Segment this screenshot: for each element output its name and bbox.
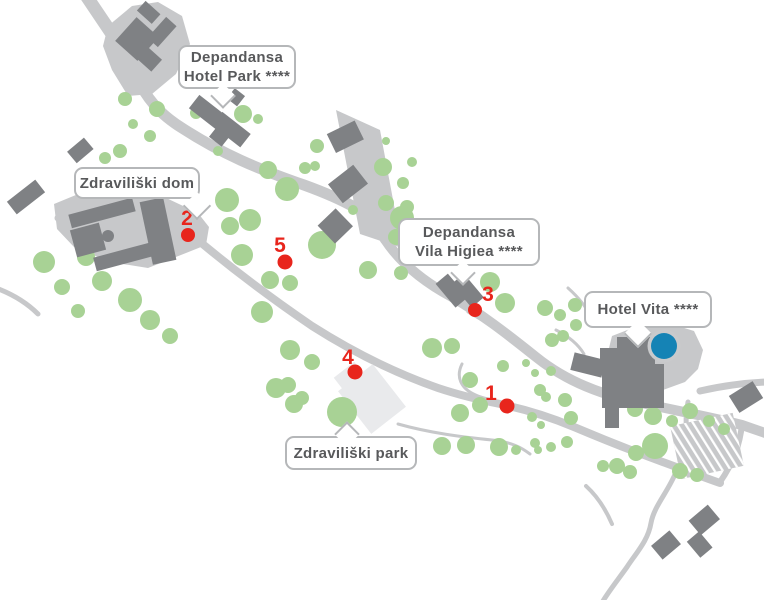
dom-rotunda — [102, 230, 114, 242]
callout-zdraviliski-dom: Zdraviliški dom — [74, 167, 200, 199]
svg-text:5: 5 — [274, 234, 286, 257]
marker-2-dot — [181, 228, 195, 242]
callout-vila-higiea-line2: Vila Higiea **** — [415, 242, 523, 261]
callout-zdraviliski-park-label: Zdraviliški park — [294, 444, 409, 463]
pool — [648, 330, 681, 363]
resort-map: 1 2 3 4 5 Depandansa Hotel Park **** — [0, 0, 764, 600]
buildings — [7, 1, 763, 560]
callout-vila-higiea-line1: Depandansa — [423, 223, 515, 242]
callout-zdraviliski-dom-label: Zdraviliški dom — [80, 174, 195, 193]
marker-1-dot — [500, 399, 515, 414]
svg-text:3: 3 — [482, 283, 494, 306]
callout-vila-higiea: Depandansa Vila Higiea **** — [398, 218, 540, 266]
svg-text:1: 1 — [485, 382, 497, 405]
marker-4-dot — [348, 365, 363, 380]
road-left-stub — [0, 288, 38, 314]
callout-hotel-park-line1: Depandansa — [191, 48, 283, 67]
callout-hotel-vita: Hotel Vita **** — [584, 291, 712, 328]
marker-5[interactable]: 5 — [274, 234, 292, 270]
road-main-artery — [384, 238, 764, 434]
marker-1[interactable]: 1 — [485, 382, 514, 414]
callout-hotel-vita-label: Hotel Vita **** — [598, 300, 699, 319]
callout-hotel-park-line2: Hotel Park **** — [184, 67, 290, 86]
callout-hotel-park: Depandansa Hotel Park **** — [178, 45, 296, 89]
marker-3-dot — [468, 303, 482, 317]
pool-water — [651, 333, 677, 359]
road-south-stub — [586, 486, 612, 524]
marker-5-dot — [278, 255, 293, 270]
